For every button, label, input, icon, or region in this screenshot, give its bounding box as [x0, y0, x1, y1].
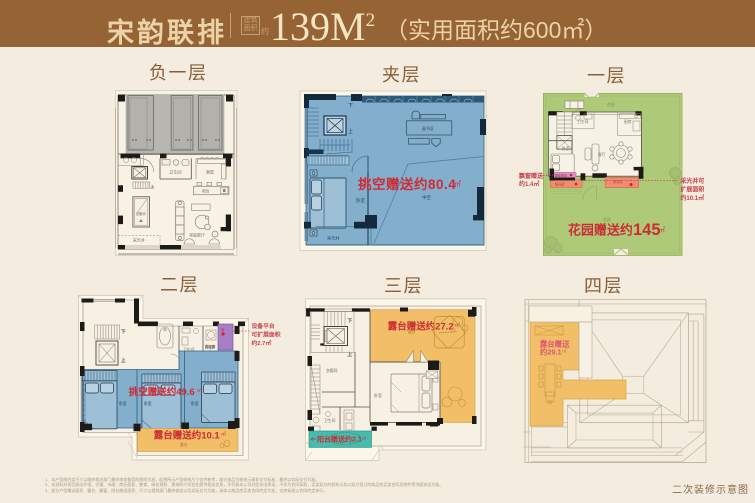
svg-text:约29.1: 约29.1: [540, 348, 562, 357]
svg-text:约2.7㎡: 约2.7㎡: [252, 339, 272, 347]
svg-text:花园: 花园: [603, 217, 611, 222]
svg-text:飘窗赠送: 飘窗赠送: [518, 172, 544, 180]
svg-text:约10.1㎡: 约10.1㎡: [680, 194, 704, 202]
svg-text:采光井: 采光井: [327, 235, 340, 242]
svg-text:设备间: 设备间: [136, 211, 147, 216]
svg-text:设备平台: 设备平台: [252, 322, 275, 330]
svg-text:扩展面积: 扩展面积: [680, 186, 704, 194]
svg-text:卫生间: 卫生间: [324, 418, 336, 423]
svg-text:㎡: ㎡: [454, 180, 461, 188]
svg-text:飘窗赠送: 飘窗赠送: [555, 172, 567, 177]
svg-text:吧台: 吧台: [202, 189, 210, 194]
svg-text:㎡: ㎡: [362, 435, 366, 441]
svg-text:卫生间: 卫生间: [577, 119, 589, 124]
svg-text:阳光房: 阳光房: [555, 182, 565, 187]
svg-text:㎡: ㎡: [197, 387, 202, 394]
svg-text:上: 上: [348, 351, 353, 357]
svg-text:下: 下: [348, 103, 353, 109]
svg-text:卧室: 卧室: [191, 401, 199, 406]
svg-text:145: 145: [633, 221, 661, 239]
svg-text:㎡: ㎡: [221, 431, 226, 438]
svg-text:约1.4㎡: 约1.4㎡: [519, 180, 539, 188]
svg-text:家庭影厅: 家庭影厅: [189, 231, 205, 237]
svg-text:采光井可: 采光井可: [680, 177, 704, 185]
svg-text:洗衣房: 洗衣房: [205, 344, 216, 349]
svg-text:衣帽间: 衣帽间: [326, 368, 338, 373]
svg-text:花园赠送约: 花园赠送约: [568, 223, 633, 238]
svg-text:画书区: 画书区: [422, 125, 434, 131]
svg-text:阳台赠送约2.1: 阳台赠送约2.1: [317, 435, 362, 444]
svg-text:客厅: 客厅: [598, 152, 606, 157]
svg-text:露台赠送约10.1: 露台赠送约10.1: [154, 430, 221, 442]
svg-text:露台: 露台: [408, 329, 416, 334]
svg-text:酒窖: 酒窖: [206, 169, 214, 176]
svg-text:上: 上: [151, 184, 155, 189]
svg-text:卫生间: 卫生间: [169, 169, 182, 176]
svg-text:挑空赠送约80.4: 挑空赠送约80.4: [358, 176, 456, 192]
svg-text:采光井: 采光井: [133, 237, 145, 243]
svg-text:露台: 露台: [180, 442, 188, 447]
svg-text:花园: 花园: [607, 102, 615, 107]
svg-text:可扩展面积: 可扩展面积: [252, 331, 281, 339]
svg-text:卧室: 卧室: [374, 392, 382, 398]
svg-text:厨房: 厨房: [624, 119, 632, 124]
svg-text:㎡: ㎡: [562, 348, 567, 354]
svg-text:卧室: 卧室: [356, 197, 365, 204]
svg-text:卧室: 卧室: [144, 401, 152, 406]
svg-text:卧室: 卧室: [562, 146, 570, 151]
svg-text:露台赠送约27.2: 露台赠送约27.2: [388, 321, 454, 333]
svg-text:上: 上: [121, 357, 126, 363]
svg-text:挑空赠送约49.6: 挑空赠送约49.6: [129, 386, 195, 398]
svg-text:中空: 中空: [422, 194, 431, 201]
svg-text:㎡: ㎡: [659, 225, 666, 234]
svg-text:上: 上: [348, 128, 353, 135]
svg-text:卧室: 卧室: [119, 401, 127, 406]
svg-text:采光井: 采光井: [613, 179, 624, 184]
